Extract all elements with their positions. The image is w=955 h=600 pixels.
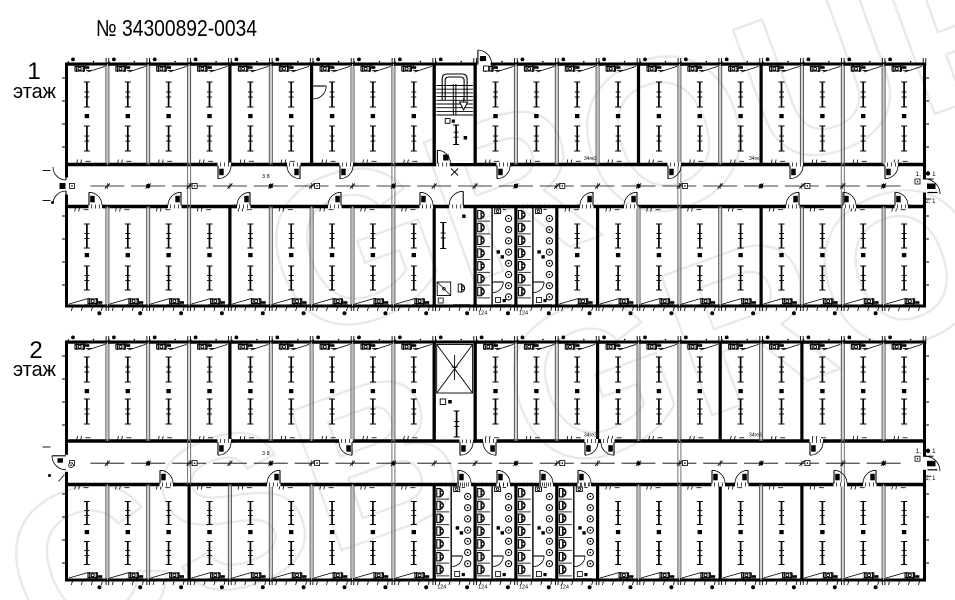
svg-text:этаж: этаж xyxy=(13,359,57,381)
svg-text:5: 5 xyxy=(923,448,927,455)
svg-text:2, 1: 2, 1 xyxy=(926,199,937,205)
svg-text:34ге3: 34ге3 xyxy=(584,156,597,162)
svg-text:этаж: этаж xyxy=(13,81,57,103)
svg-text:5: 5 xyxy=(923,171,927,178)
svg-text:34ге3: 34ге3 xyxy=(584,433,597,439)
svg-text:124: 124 xyxy=(478,585,487,591)
svg-text:124: 124 xyxy=(519,585,528,591)
svg-text:2, 1: 2, 1 xyxy=(926,476,937,482)
svg-text:34ге3: 34ге3 xyxy=(749,433,762,439)
svg-text:№ 34300892-0034: № 34300892-0034 xyxy=(96,15,257,41)
svg-text:1,: 1, xyxy=(916,171,922,178)
svg-text:3 8: 3 8 xyxy=(262,451,270,457)
svg-text:1: 1 xyxy=(932,448,936,455)
svg-text:124: 124 xyxy=(478,311,487,317)
svg-text:124: 124 xyxy=(560,585,569,591)
svg-text:124: 124 xyxy=(437,585,446,591)
svg-text:124: 124 xyxy=(519,311,528,317)
svg-text:1,: 1, xyxy=(916,448,922,455)
svg-text:3 8: 3 8 xyxy=(262,174,270,180)
svg-text:34ге3: 34ге3 xyxy=(749,156,762,162)
svg-text:1: 1 xyxy=(932,171,936,178)
